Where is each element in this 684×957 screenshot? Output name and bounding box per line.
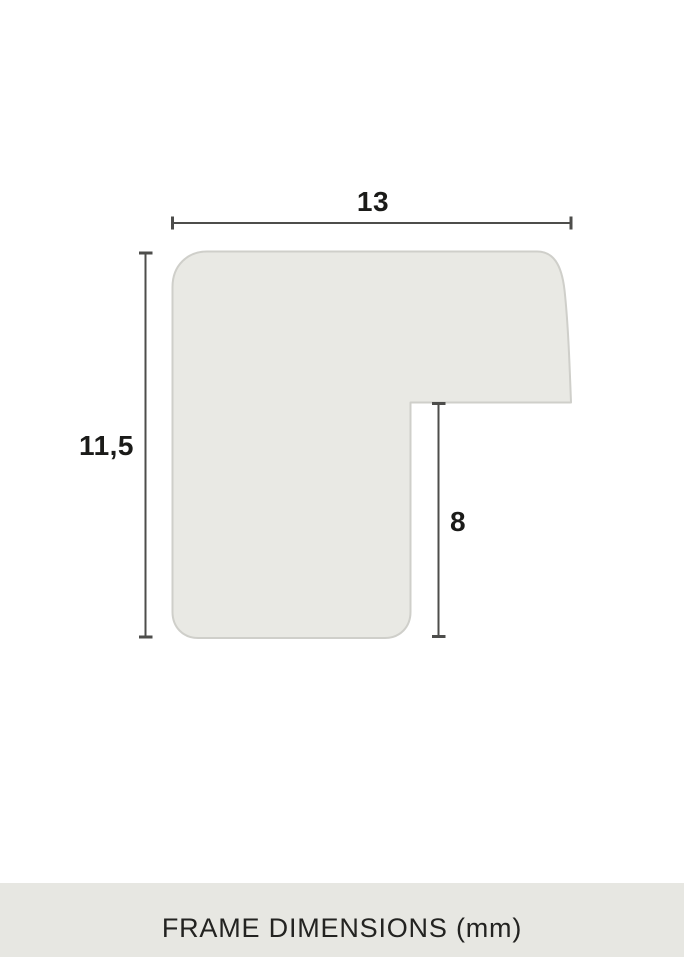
footer-caption: FRAME DIMENSIONS (mm) — [162, 913, 522, 944]
width-dimension-line — [173, 217, 572, 230]
footer-bar: FRAME DIMENSIONS (mm) — [0, 883, 684, 957]
width-dimension-label: 13 — [332, 188, 414, 216]
height-dimension-label: 11,5 — [50, 432, 134, 460]
height-dimension-line — [139, 253, 153, 637]
rabbet-dimension-label: 8 — [428, 508, 488, 536]
frame-profile-shape — [173, 252, 572, 639]
screen: 13 11,5 8 FRAME DIMENSIONS (mm) — [0, 0, 684, 957]
